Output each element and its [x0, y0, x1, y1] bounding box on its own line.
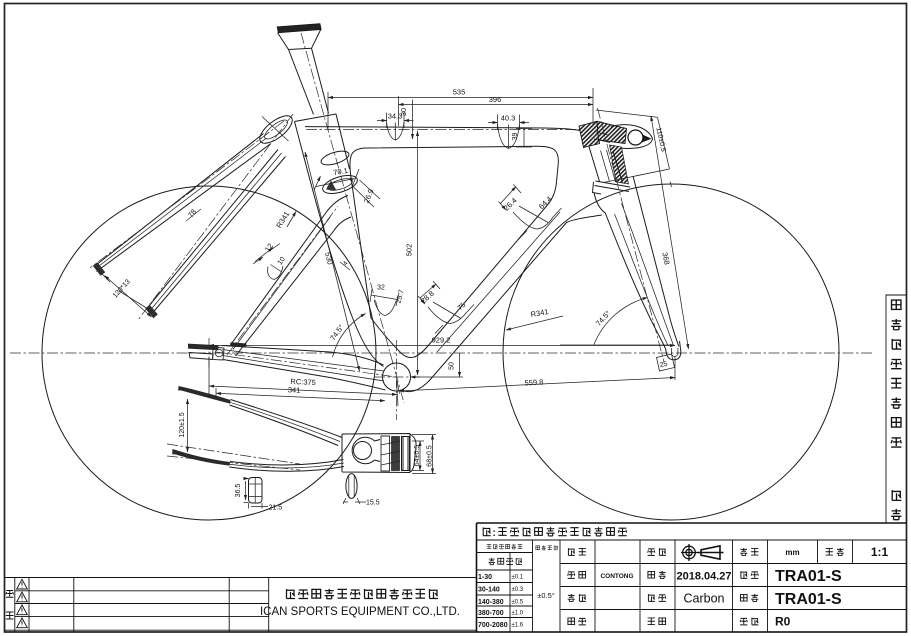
svg-text:380-700: 380-700: [478, 610, 504, 617]
svg-text:64±0.5: 64±0.5: [414, 445, 421, 466]
svg-text:39: 39: [512, 133, 519, 141]
svg-text:50: 50: [449, 362, 456, 370]
svg-text:±0.5°: ±0.5°: [537, 591, 555, 600]
svg-text:68±0.5: 68±0.5: [427, 445, 434, 466]
svg-text:21.5: 21.5: [269, 505, 283, 512]
svg-text:Carbon: Carbon: [684, 592, 725, 606]
svg-text:30: 30: [399, 108, 408, 116]
svg-text:CONTONG: CONTONG: [600, 573, 633, 580]
svg-text:1:1: 1:1: [871, 545, 889, 559]
svg-text:396: 396: [489, 95, 502, 104]
svg-text:±0.3: ±0.3: [512, 587, 524, 593]
svg-text:TRA01-S: TRA01-S: [775, 568, 842, 585]
svg-text:15.5: 15.5: [366, 500, 380, 507]
svg-text:559.8: 559.8: [524, 378, 543, 388]
svg-text:120±1.5: 120±1.5: [179, 412, 186, 437]
svg-text:±0.5: ±0.5: [512, 600, 524, 606]
svg-text:30-140: 30-140: [478, 587, 500, 594]
svg-text:341: 341: [288, 385, 301, 395]
svg-text:mm: mm: [785, 548, 799, 557]
svg-text:±0.1: ±0.1: [512, 575, 524, 581]
svg-text:TRA01-S: TRA01-S: [775, 591, 842, 608]
svg-text:R0: R0: [775, 615, 791, 629]
svg-text:ICAN SPORTS EQUIPMENT CO.,LTD.: ICAN SPORTS EQUIPMENT CO.,LTD.: [260, 606, 460, 618]
svg-text:40.3: 40.3: [501, 114, 516, 123]
svg-text:929.2: 929.2: [432, 336, 451, 345]
svg-text:140-380: 140-380: [478, 599, 504, 606]
svg-text:36.5: 36.5: [235, 484, 242, 498]
svg-text:502: 502: [405, 244, 414, 257]
svg-text:32: 32: [377, 285, 385, 292]
svg-text:535: 535: [453, 88, 466, 97]
svg-text::: :: [493, 528, 496, 539]
svg-text:±1.6: ±1.6: [512, 623, 524, 629]
svg-text:2018.04.27: 2018.04.27: [676, 571, 731, 583]
svg-text:1-30: 1-30: [478, 574, 492, 581]
svg-text:±1.0: ±1.0: [512, 611, 524, 617]
svg-text:700-2080: 700-2080: [478, 622, 508, 629]
